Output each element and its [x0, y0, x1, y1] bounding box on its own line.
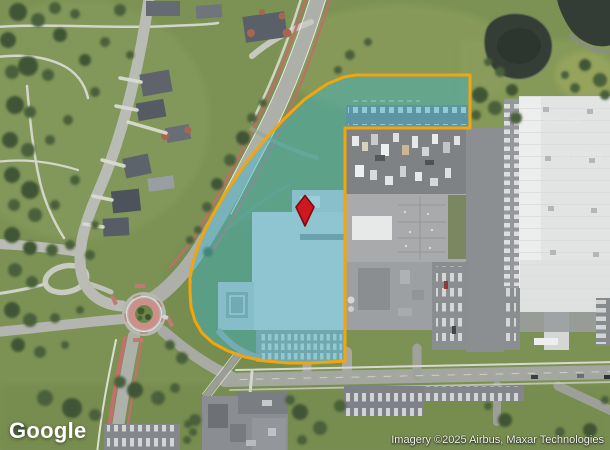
- svg-text:© 2025 Google: © 2025 Google: [522, 116, 583, 126]
- warehouse-buildings: [466, 96, 610, 352]
- svg-text:© 2025 Google: © 2025 Google: [541, 149, 602, 159]
- google-logo[interactable]: Google: [9, 418, 87, 444]
- map-attribution: Imagery ©2025 Airbus, Maxar Technologies: [391, 434, 604, 446]
- satellite-imagery: © 2025 Google © 2025 Google: [0, 0, 610, 450]
- map-viewport[interactable]: © 2025 Google © 2025 Google Google Image…: [0, 0, 610, 450]
